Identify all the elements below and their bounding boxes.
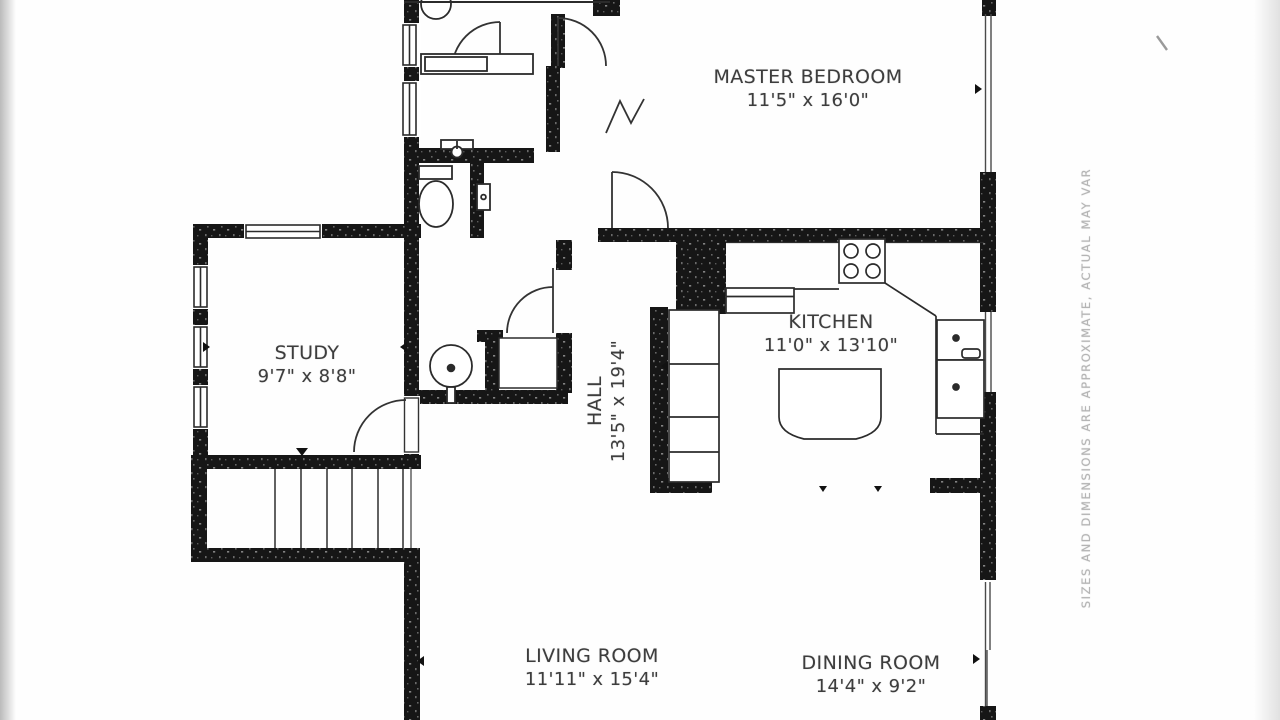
study-door [354,398,419,452]
hall-bathroom-door [507,268,553,333]
wall-sink-icon [477,184,490,210]
room-name: HALL [584,340,607,462]
vanity-counter [421,54,533,74]
kitchen-cabinets [669,310,719,482]
room-dimensions: 14'4" x 9'2" [802,675,941,698]
room-label-dining-room: DINING ROOM 14'4" x 9'2" [802,652,941,698]
room-label-master-bedroom: MASTER BEDROOM 11'5" x 16'0" [713,66,902,112]
room-name: DINING ROOM [802,652,941,675]
window-wall-right [986,14,992,706]
room-label-living-room: LIVING ROOM 11'11" x 15'4" [525,645,659,691]
room-name: LIVING ROOM [525,645,659,668]
stove-icon [839,239,885,283]
room-label-hall: HALL 13'5" x 19'4" [584,340,630,462]
toilet-icon [419,166,453,227]
room-dimensions: 9'7" x 8'8" [258,365,357,388]
room-dimensions: 13'5" x 19'4" [607,340,630,462]
room-name: MASTER BEDROOM [713,66,902,89]
master-bedroom-door [612,172,668,228]
staircase [275,469,411,548]
room-name: KITCHEN [764,311,898,334]
kitchen-island [779,369,881,439]
disclaimer-text: SIZES AND DIMENSIONS ARE APPROXIMATE, AC… [1079,168,1093,609]
shower-icon [499,338,557,388]
scan-artifact-mark [1157,36,1167,50]
room-label-study: STUDY 9'7" x 8'8" [258,342,357,388]
closet-door-top [558,18,606,66]
room-dimensions: 11'5" x 16'0" [713,89,902,112]
refrigerator-icon [726,288,794,313]
room-dimensions: 11'11" x 15'4" [525,668,659,691]
room-dimensions: 11'0" x 13'10" [764,334,898,357]
floor-plan-page: MASTER BEDROOM 11'5" x 16'0" STUDY 9'7" … [0,0,1280,720]
sink-cabinet [937,320,984,418]
room-label-kitchen: KITCHEN 11'0" x 13'10" [764,311,898,357]
closet-bifold-door [606,99,644,133]
room-name: STUDY [258,342,357,365]
